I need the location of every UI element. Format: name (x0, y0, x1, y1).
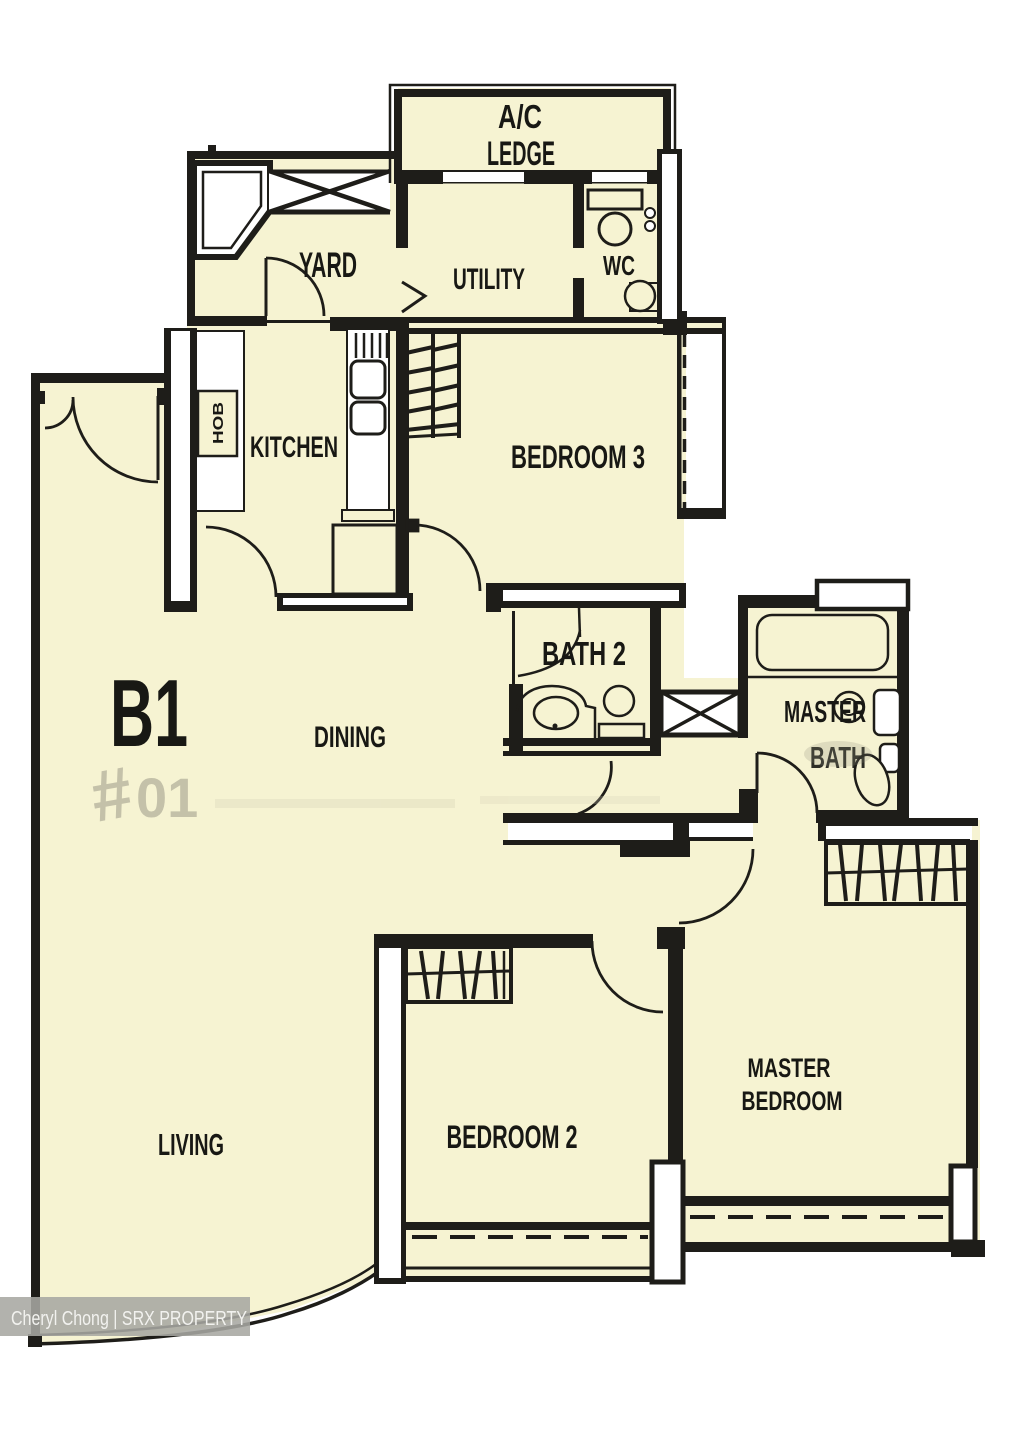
svg-text:LIVING: LIVING (158, 1127, 224, 1162)
svg-text:MASTER: MASTER (748, 1053, 831, 1083)
svg-text:01: 01 (136, 766, 198, 829)
svg-text:B1: B1 (110, 660, 188, 767)
svg-text:Cheryl Chong | SRX PROPERTY: Cheryl Chong | SRX PROPERTY (11, 1308, 247, 1330)
svg-text:BEDROOM 2: BEDROOM 2 (447, 1119, 578, 1155)
svg-text:HOB: HOB (210, 402, 227, 444)
svg-text:LEDGE: LEDGE (487, 135, 555, 173)
svg-text:UTILITY: UTILITY (453, 263, 525, 296)
svg-text:KITCHEN: KITCHEN (250, 431, 338, 464)
svg-text:BEDROOM: BEDROOM (742, 1086, 843, 1116)
svg-text:A/C: A/C (498, 98, 542, 135)
svg-text:WC: WC (603, 250, 635, 281)
svg-text:YARD: YARD (299, 246, 357, 285)
svg-text:BATH 2: BATH 2 (542, 635, 626, 672)
svg-text:MASTER: MASTER (784, 694, 866, 729)
svg-text:DINING: DINING (314, 721, 386, 754)
svg-text:BEDROOM 3: BEDROOM 3 (511, 439, 645, 475)
